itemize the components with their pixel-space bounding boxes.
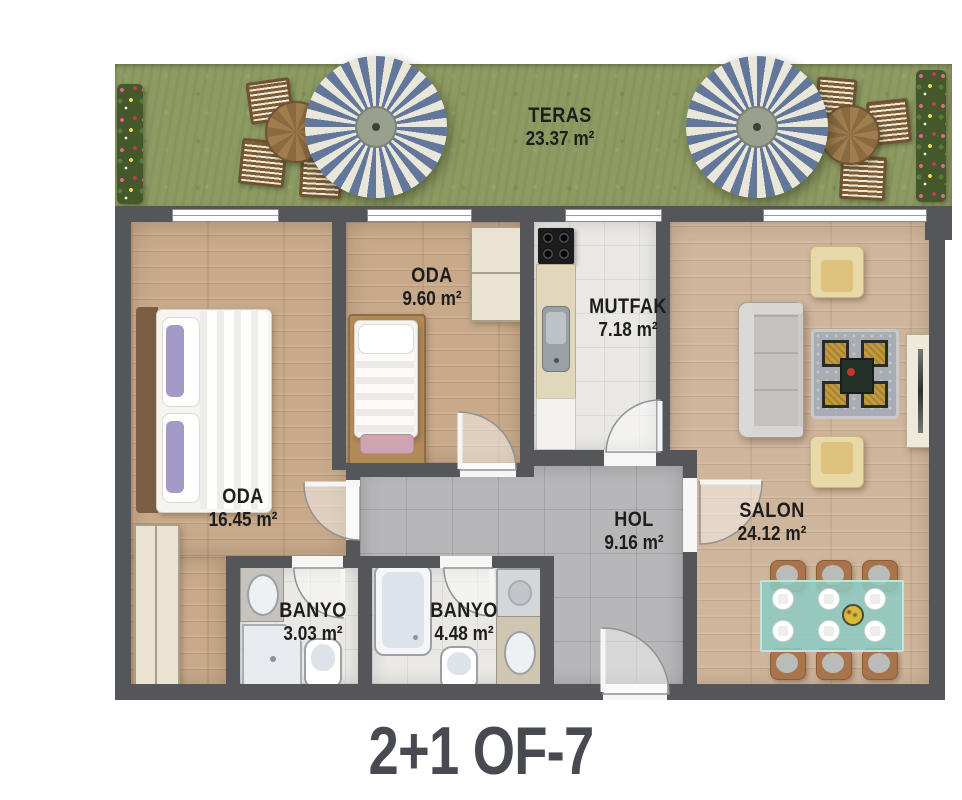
wall <box>683 466 697 478</box>
label-banyo-small: BANYO 3.03 m² <box>279 599 346 645</box>
wall <box>667 684 945 700</box>
flower-bed-left <box>117 84 143 204</box>
wall <box>520 222 534 450</box>
room-area: 24.12 m² <box>738 523 807 545</box>
accent-pillow <box>166 325 184 397</box>
window <box>367 209 472 222</box>
floor-plan-canvas: TERAS 23.37 m² ODA 9.60 m² MUTFAK 7.18 m… <box>0 0 962 800</box>
rug <box>814 332 896 416</box>
window <box>172 209 279 222</box>
room-name: SALON <box>738 499 807 523</box>
label-mutfak: MUTFAK 7.18 m² <box>589 295 667 341</box>
dining-chair <box>816 648 852 680</box>
room-name: ODA <box>402 264 461 288</box>
label-salon: SALON 24.12 m² <box>738 499 807 545</box>
double-bed-headboard <box>136 307 158 513</box>
pillow <box>358 324 414 354</box>
kitchen-cabinet <box>536 398 576 450</box>
wardrobe <box>470 226 522 322</box>
flower-bed-right <box>916 70 946 202</box>
room-name: MUTFAK <box>589 295 667 319</box>
stove-icon <box>538 228 574 264</box>
wall <box>540 556 554 686</box>
wall <box>656 450 697 466</box>
wall <box>372 556 440 568</box>
wall <box>332 222 346 470</box>
bathtub <box>374 564 432 656</box>
garden-table-right <box>820 105 880 165</box>
washbasin <box>240 566 284 622</box>
wall <box>358 556 372 686</box>
room-area: 9.60 m² <box>402 288 461 310</box>
duvet <box>200 311 268 509</box>
label-teras: TERAS 23.37 m² <box>526 104 595 150</box>
wall <box>520 450 604 466</box>
room-name: ODA <box>209 485 278 509</box>
door-opening <box>683 478 697 552</box>
wall <box>925 206 952 240</box>
room-name: HOL <box>604 508 663 532</box>
wall <box>115 206 131 700</box>
wardrobe <box>134 524 180 688</box>
label-hol: HOL 9.16 m² <box>604 508 663 554</box>
room-area: 3.03 m² <box>279 623 346 645</box>
toilet <box>304 638 342 688</box>
wall <box>683 552 697 686</box>
washing-machine <box>496 568 544 618</box>
table-centerpiece <box>842 604 864 626</box>
label-oda-small: ODA 9.60 m² <box>402 264 461 310</box>
kitchen-sink <box>542 306 570 372</box>
door-opening <box>292 556 343 568</box>
wall <box>929 240 945 700</box>
wall <box>226 556 240 686</box>
door-opening <box>460 463 516 477</box>
entrance-opening <box>603 684 667 700</box>
dining-chair <box>862 648 898 680</box>
room-area: 7.18 m² <box>589 319 667 341</box>
sofa <box>738 302 804 438</box>
room-area: 23.37 m² <box>526 128 595 150</box>
duvet <box>356 354 414 432</box>
pink-blanket <box>360 434 414 454</box>
label-oda-large: ODA 16.45 m² <box>209 485 278 531</box>
plan-title: 2+1 OF-7 <box>96 712 866 790</box>
dining-chair <box>770 648 806 680</box>
wall <box>656 222 670 466</box>
umbrella-left-icon <box>305 56 447 198</box>
terrace-window <box>763 209 927 222</box>
room-name: TERAS <box>526 104 595 128</box>
wall <box>346 463 460 477</box>
washbasin <box>496 616 542 686</box>
window <box>565 209 662 222</box>
armchair <box>810 246 864 298</box>
coffee-table <box>840 358 874 394</box>
door-opening <box>346 480 360 540</box>
door-opening <box>440 556 492 568</box>
umbrella-right-icon <box>686 56 828 198</box>
armchair <box>810 436 864 488</box>
accent-pillow <box>166 421 184 493</box>
wall <box>115 684 603 700</box>
room-area: 16.45 m² <box>209 509 278 531</box>
room-name: BANYO <box>279 599 346 623</box>
room-area: 9.16 m² <box>604 532 663 554</box>
wall <box>346 470 360 480</box>
room-area: 4.48 m² <box>430 623 497 645</box>
label-banyo-large: BANYO 4.48 m² <box>430 599 497 645</box>
room-name: BANYO <box>430 599 497 623</box>
door-opening <box>604 450 656 466</box>
